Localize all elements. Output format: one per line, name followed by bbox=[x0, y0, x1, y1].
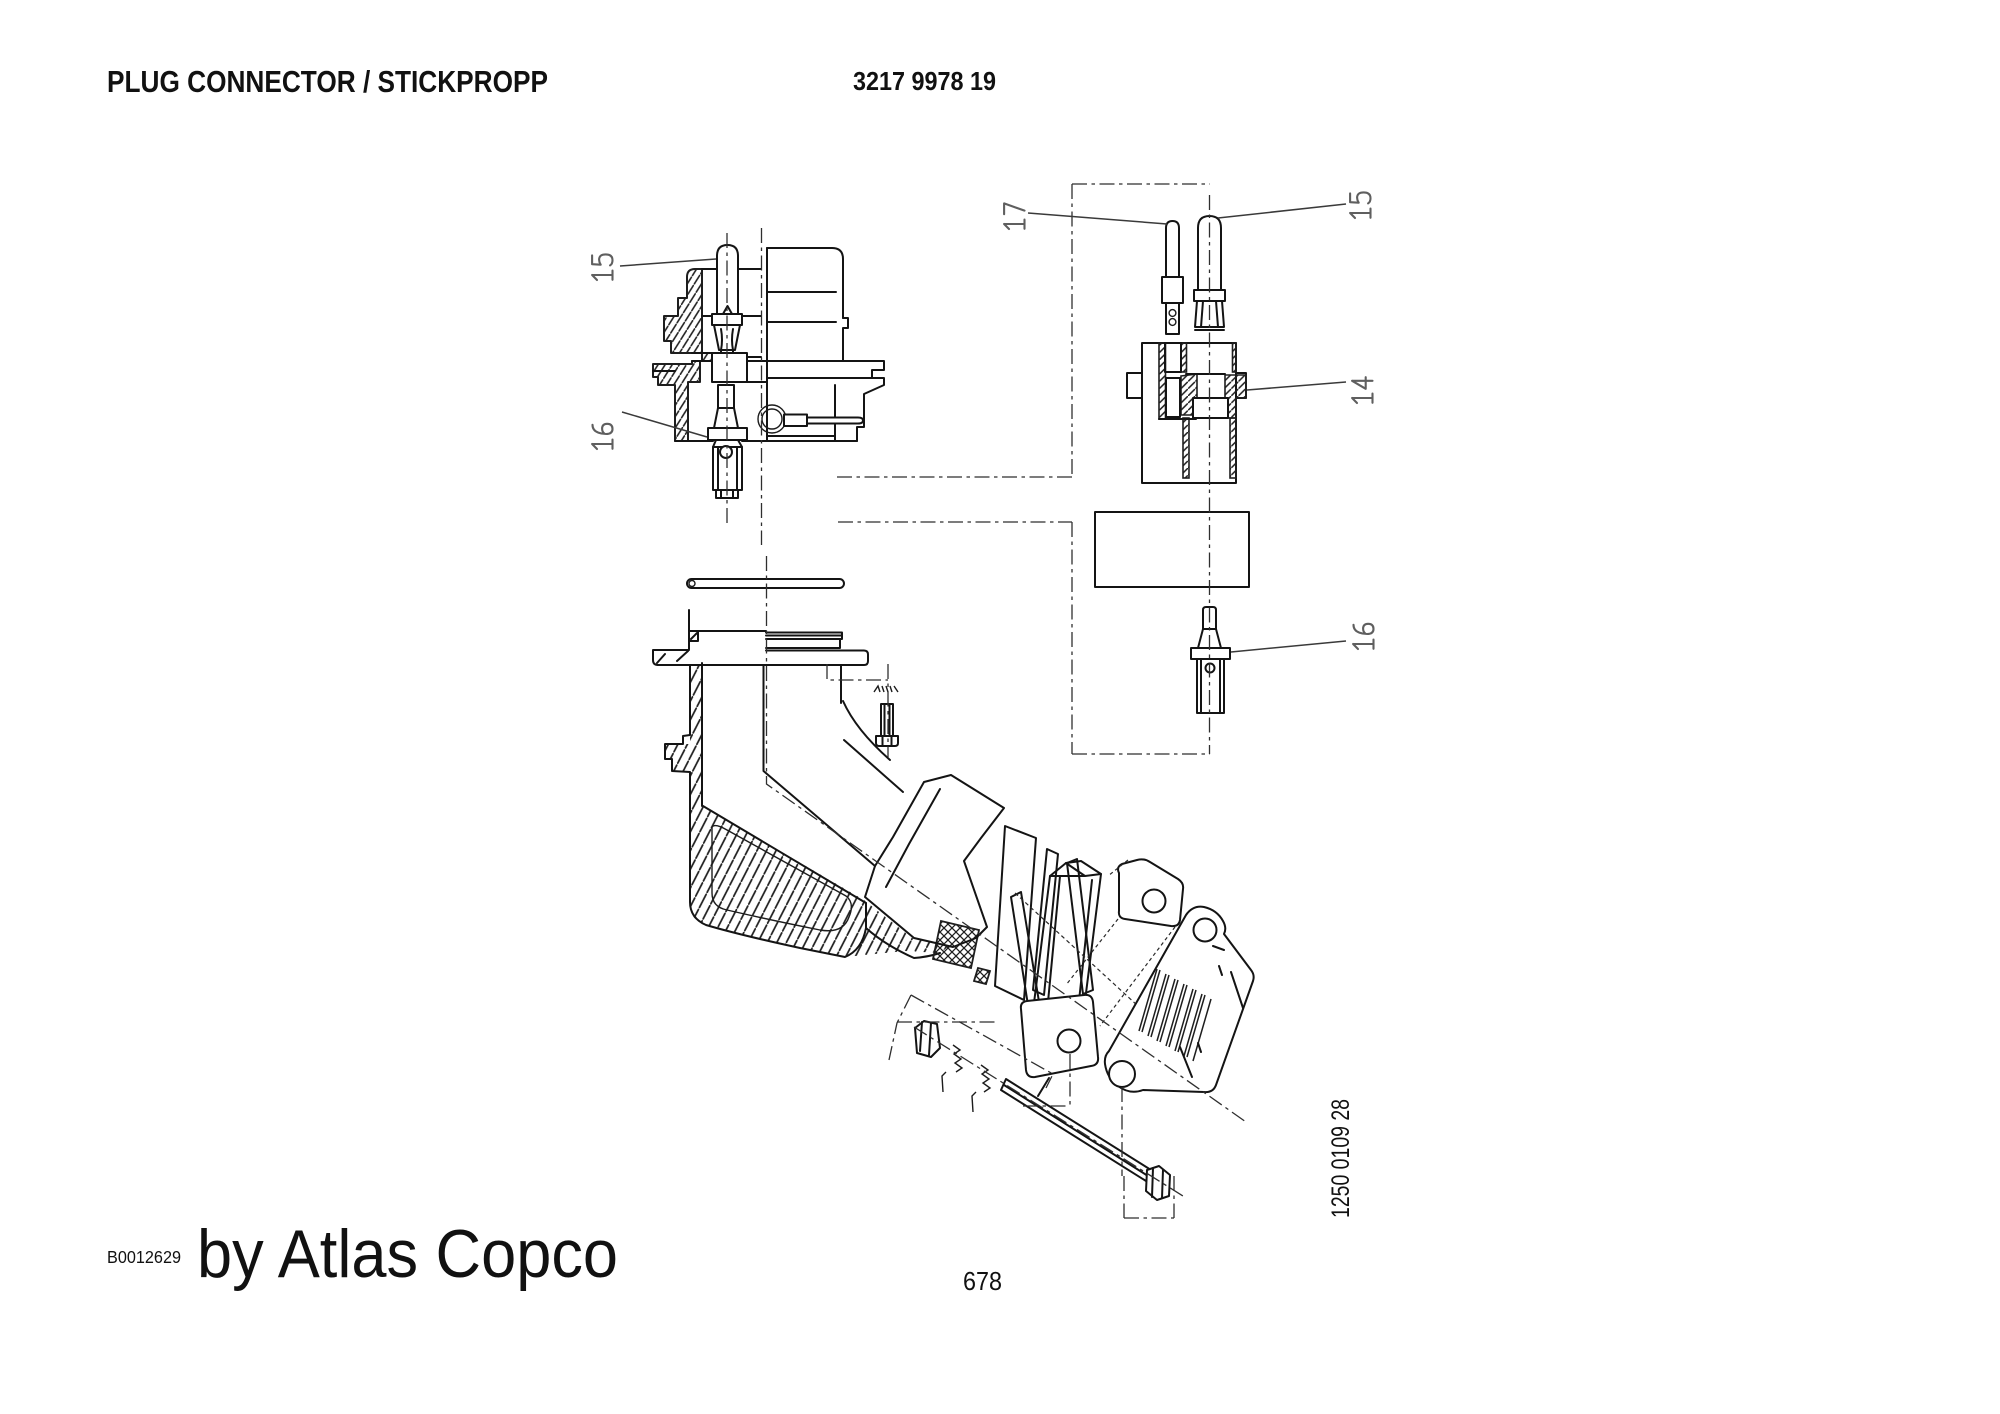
svg-text:PLUG CONNECTOR / STICKPROPP: PLUG CONNECTOR / STICKPROPP bbox=[107, 64, 548, 99]
svg-text:678: 678 bbox=[963, 1266, 1002, 1296]
svg-text:B0012629: B0012629 bbox=[107, 1247, 181, 1267]
svg-text:by Atlas Copco: by Atlas Copco bbox=[197, 1216, 618, 1292]
svg-text:3217 9978 19: 3217 9978 19 bbox=[853, 66, 996, 96]
svg-text:1250 0109 28: 1250 0109 28 bbox=[1327, 1099, 1355, 1218]
